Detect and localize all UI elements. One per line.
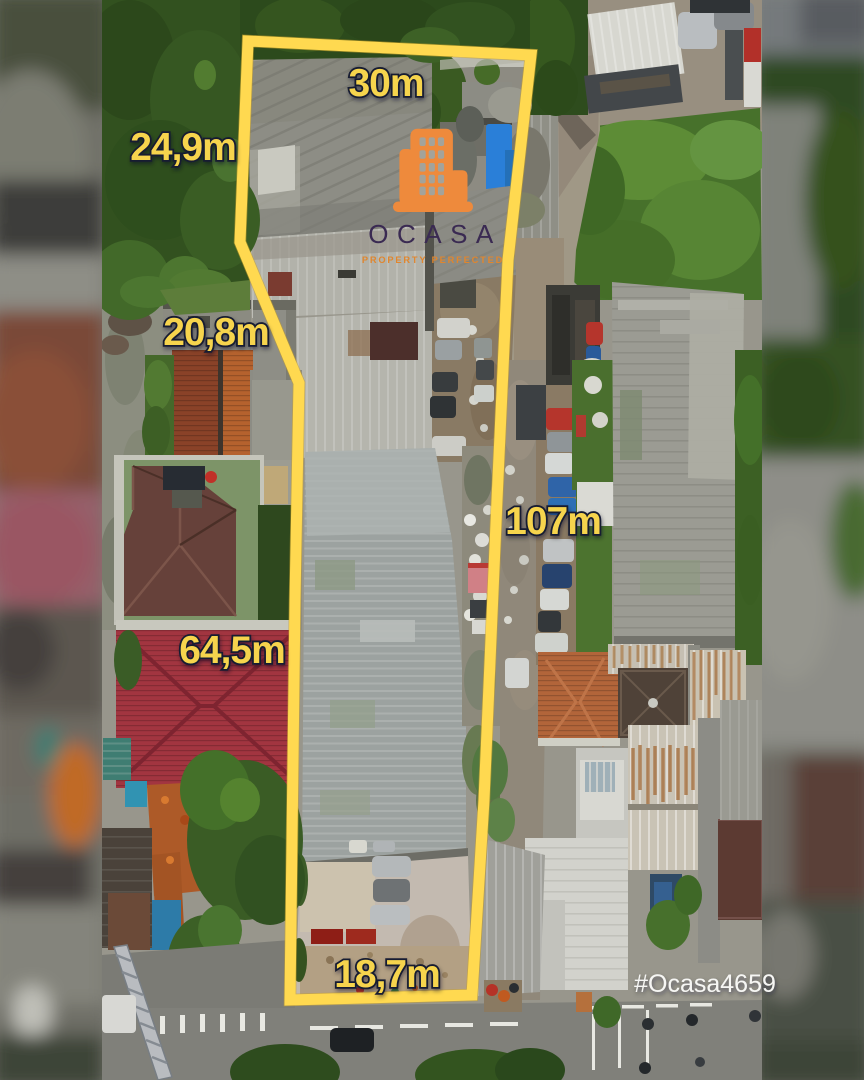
svg-text:18,7m: 18,7m	[334, 953, 440, 996]
svg-text:64,5m: 64,5m	[179, 629, 285, 672]
svg-text:PROPERTY PERFECTED: PROPERTY PERFECTED	[362, 255, 504, 265]
svg-text:24,9m: 24,9m	[130, 126, 236, 169]
svg-text:107m: 107m	[505, 500, 601, 543]
svg-text:OCASA: OCASA	[368, 219, 502, 249]
svg-text:20,8m: 20,8m	[163, 311, 269, 354]
svg-text:#Ocasa4659: #Ocasa4659	[634, 970, 776, 998]
svg-text:30m: 30m	[348, 62, 423, 105]
